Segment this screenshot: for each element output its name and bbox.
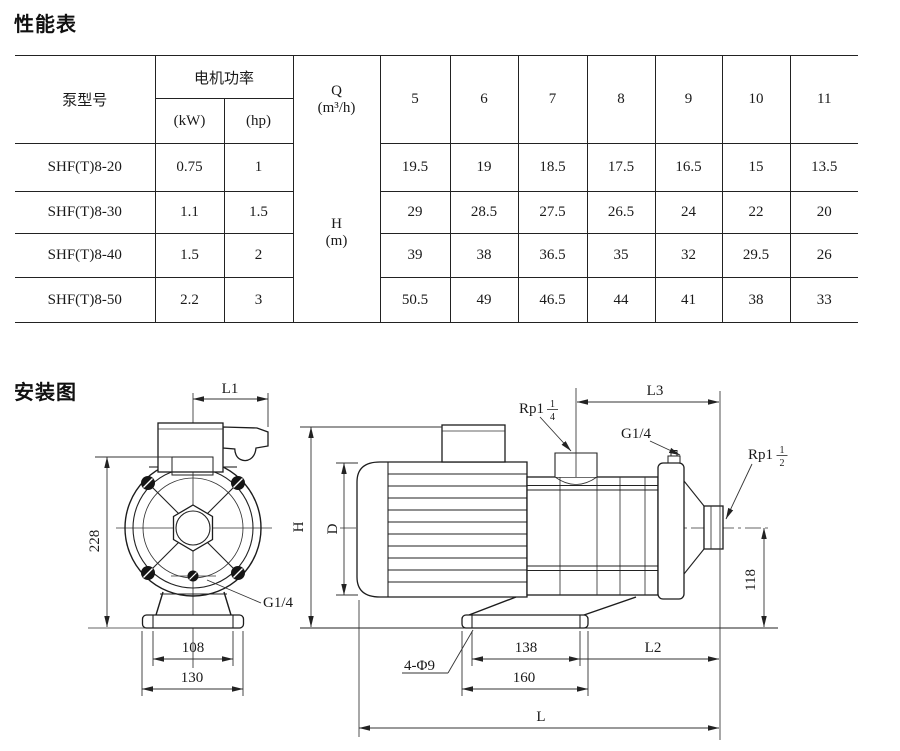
terminal-box-side: [442, 425, 505, 462]
head-cell: 49: [450, 278, 518, 323]
model-cell: SHF(T)8-50: [15, 278, 155, 323]
dim-label-160: 160: [513, 670, 536, 686]
model-cell: SHF(T)8-40: [15, 234, 155, 278]
dim-label-Rp114-den: 4: [550, 412, 555, 423]
performance-table: 泵型号 电机功率 Q (m³/h) 5 6 7 8 9 10 11 (kW) (…: [15, 55, 858, 323]
pump-foot-front: [88, 592, 244, 628]
head-cell: 39: [380, 234, 450, 278]
dim-label-138: 138: [515, 640, 538, 656]
junction-box-front: [149, 423, 268, 475]
base-plate-front: [143, 615, 244, 628]
installation-diagram-title: 安装图: [14, 376, 77, 405]
dim-228: 228: [87, 457, 172, 627]
head-cell: 46.5: [518, 278, 587, 323]
col-header-kw: (kW): [155, 99, 224, 144]
head-cell: 41: [655, 278, 722, 323]
performance-table-title: 性能表: [14, 8, 77, 37]
hex-plug: [174, 505, 213, 551]
head-cell: 19.5: [380, 144, 450, 192]
label-Rp1-half: Rp1 1 2: [726, 445, 788, 519]
dim-label-130: 130: [181, 670, 204, 686]
head-cell: 29.5: [722, 234, 790, 278]
dim-D: D: [325, 463, 358, 595]
head-cell: 20: [790, 192, 858, 234]
head-cell: 29: [380, 192, 450, 234]
head-cell: 13.5: [790, 144, 858, 192]
head-cell: 28.5: [450, 192, 518, 234]
kw-cell: 1.1: [155, 192, 224, 234]
flow-col-10: 10: [722, 56, 790, 144]
dim-label-228: 228: [87, 530, 103, 553]
flow-col-11: 11: [790, 56, 858, 144]
motor-body: [357, 425, 527, 597]
dim-L1: L1: [193, 381, 268, 427]
model-cell: SHF(T)8-20: [15, 144, 155, 192]
dim-label-L2: L2: [645, 640, 662, 656]
hp-cell: 3: [224, 278, 293, 323]
pump-side-view: H D L3 Rp1 1 4 G1/4: [291, 383, 788, 740]
dim-label-G14-side: G1/4: [621, 426, 652, 442]
rear-flange: [658, 451, 723, 600]
dim-label-L3: L3: [647, 383, 664, 399]
dim-label-Rp114-num: 1: [550, 399, 555, 410]
flow-col-6: 6: [450, 56, 518, 144]
dim-138: 138: [472, 631, 580, 666]
dim-118: 118: [743, 528, 764, 627]
dim-L: L: [359, 709, 719, 728]
dim-label-L: L: [536, 709, 545, 725]
head-cell: 22: [722, 192, 790, 234]
head-cell: 18.5: [518, 144, 587, 192]
col-header-hp: (hp): [224, 99, 293, 144]
kw-cell: 1.5: [155, 234, 224, 278]
terminal-connector: [223, 427, 268, 461]
dim-label-G14-front: G1/4: [263, 595, 294, 611]
pump-front-view: L1 228 108 130 G1/4: [87, 381, 294, 696]
spec-sheet-page: 性能表 泵型号 电机功率 Q (m³/h) 5 6 7 8 9 10 11 (k…: [0, 0, 900, 751]
dim-label-Rp112-den: 2: [780, 458, 785, 469]
hp-cell: 2: [224, 234, 293, 278]
head-cell: 26.5: [587, 192, 655, 234]
dim-label-D: D: [325, 523, 341, 534]
kw-cell: 0.75: [155, 144, 224, 192]
col-header-q: Q (m³/h): [293, 56, 380, 144]
dim-label-118: 118: [743, 569, 759, 591]
label-Rp1-quarter: Rp1 1 4: [519, 399, 571, 451]
head-cell: 38: [722, 278, 790, 323]
label-G14-side: G1/4: [621, 426, 680, 455]
head-cell: 44: [587, 278, 655, 323]
h-unit: (m): [294, 233, 380, 250]
base-plate-side: [462, 615, 588, 628]
head-cell: 19: [450, 144, 518, 192]
head-cell: 35: [587, 234, 655, 278]
q-symbol: Q: [294, 83, 380, 100]
dim-label-L1: L1: [222, 381, 239, 397]
model-cell: SHF(T)8-30: [15, 192, 155, 234]
head-cell: 26: [790, 234, 858, 278]
head-cell: 24: [655, 192, 722, 234]
col-header-pump-model: 泵型号: [15, 56, 155, 144]
head-cell: 33: [790, 278, 858, 323]
pump-stages: [527, 477, 658, 595]
label-G14-front: G1/4: [207, 580, 294, 611]
flow-col-7: 7: [518, 56, 587, 144]
q-unit: (m³/h): [294, 100, 380, 117]
table-row: SHF(T)8-30 1.1 1.5 29 28.5 27.5 26.5 24 …: [15, 192, 858, 234]
head-unit-cell: H (m): [293, 144, 380, 323]
drain-plug: [171, 571, 216, 582]
flow-col-9: 9: [655, 56, 722, 144]
reducer-cone: [684, 481, 704, 574]
head-cell: 27.5: [518, 192, 587, 234]
dim-L3: L3: [577, 383, 719, 402]
table-row: SHF(T)8-20 0.75 1 H (m) 19.5 19 18.5 17.…: [15, 144, 858, 192]
table-row: SHF(T)8-40 1.5 2 39 38 36.5 35 32 29.5 2…: [15, 234, 858, 278]
head-cell: 50.5: [380, 278, 450, 323]
flow-col-8: 8: [587, 56, 655, 144]
col-header-motor-power: 电机功率: [155, 56, 293, 99]
head-cell: 38: [450, 234, 518, 278]
dim-L2: L2: [580, 640, 719, 659]
hp-cell: 1: [224, 144, 293, 192]
head-cell: 16.5: [655, 144, 722, 192]
head-cell: 36.5: [518, 234, 587, 278]
head-cell: 15: [722, 144, 790, 192]
dim-label-Rp112-num: 1: [780, 445, 785, 456]
head-cell: 17.5: [587, 144, 655, 192]
dim-label-H: H: [291, 521, 307, 532]
kw-cell: 2.2: [155, 278, 224, 323]
dim-label-4phi9: 4-Φ9: [404, 658, 435, 674]
dim-label-Rp112-prefix: Rp1: [748, 447, 773, 463]
hp-cell: 1.5: [224, 192, 293, 234]
h-symbol: H: [294, 216, 380, 233]
flow-col-5: 5: [380, 56, 450, 144]
dim-label-108: 108: [182, 640, 205, 656]
pump-foot-side: [462, 597, 636, 628]
table-row: SHF(T)8-50 2.2 3 50.5 49 46.5 44 41 38 3…: [15, 278, 858, 323]
dim-label-Rp114-prefix: Rp1: [519, 401, 544, 417]
head-cell: 32: [655, 234, 722, 278]
discharge-port: [555, 388, 597, 485]
